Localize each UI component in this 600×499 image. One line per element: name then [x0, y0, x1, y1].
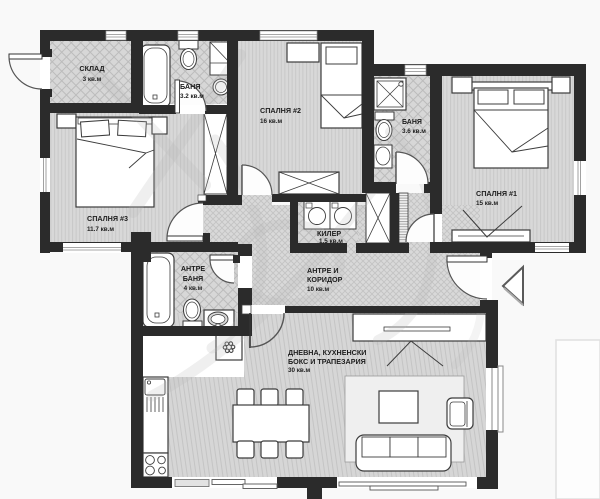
- svg-text:БАНЯ: БАНЯ: [183, 274, 203, 283]
- svg-text:1.5 кв.м: 1.5 кв.м: [319, 238, 343, 245]
- svg-text:СКЛАД: СКЛАД: [79, 64, 104, 73]
- svg-text:10 кв.м: 10 кв.м: [307, 286, 330, 293]
- svg-text:ДНЕВНА, КУХНЕНСКИ: ДНЕВНА, КУХНЕНСКИ: [288, 348, 366, 357]
- svg-text:3.2 кв.м: 3.2 кв.м: [180, 93, 204, 100]
- svg-text:АНТРЕ: АНТРЕ: [181, 264, 206, 273]
- svg-text:КИЛЕР: КИЛЕР: [317, 229, 341, 238]
- svg-text:3 кв.м: 3 кв.м: [83, 76, 102, 83]
- svg-text:БОКС И ТРАПЕЗАРИЯ: БОКС И ТРАПЕЗАРИЯ: [288, 357, 366, 366]
- svg-text:СПАЛНЯ #1: СПАЛНЯ #1: [476, 189, 517, 198]
- svg-text:30 кв.м: 30 кв.м: [288, 367, 311, 374]
- svg-text:АНТРЕ И: АНТРЕ И: [307, 266, 339, 275]
- svg-text:11.7 кв.м: 11.7 кв.м: [87, 226, 114, 233]
- svg-text:16 кв.м: 16 кв.м: [260, 118, 283, 125]
- svg-text:4 кв.м: 4 кв.м: [184, 285, 203, 292]
- svg-text:БАНЯ: БАНЯ: [402, 119, 422, 126]
- svg-text:15 кв.м: 15 кв.м: [476, 200, 499, 207]
- svg-text:СПАЛНЯ #2: СПАЛНЯ #2: [260, 106, 301, 115]
- svg-text:БАНЯ: БАНЯ: [180, 82, 200, 91]
- svg-text:КОРИДОР: КОРИДОР: [307, 275, 343, 284]
- svg-text:СПАЛНЯ #3: СПАЛНЯ #3: [87, 214, 128, 223]
- svg-text:3.6 кв.м: 3.6 кв.м: [402, 128, 426, 135]
